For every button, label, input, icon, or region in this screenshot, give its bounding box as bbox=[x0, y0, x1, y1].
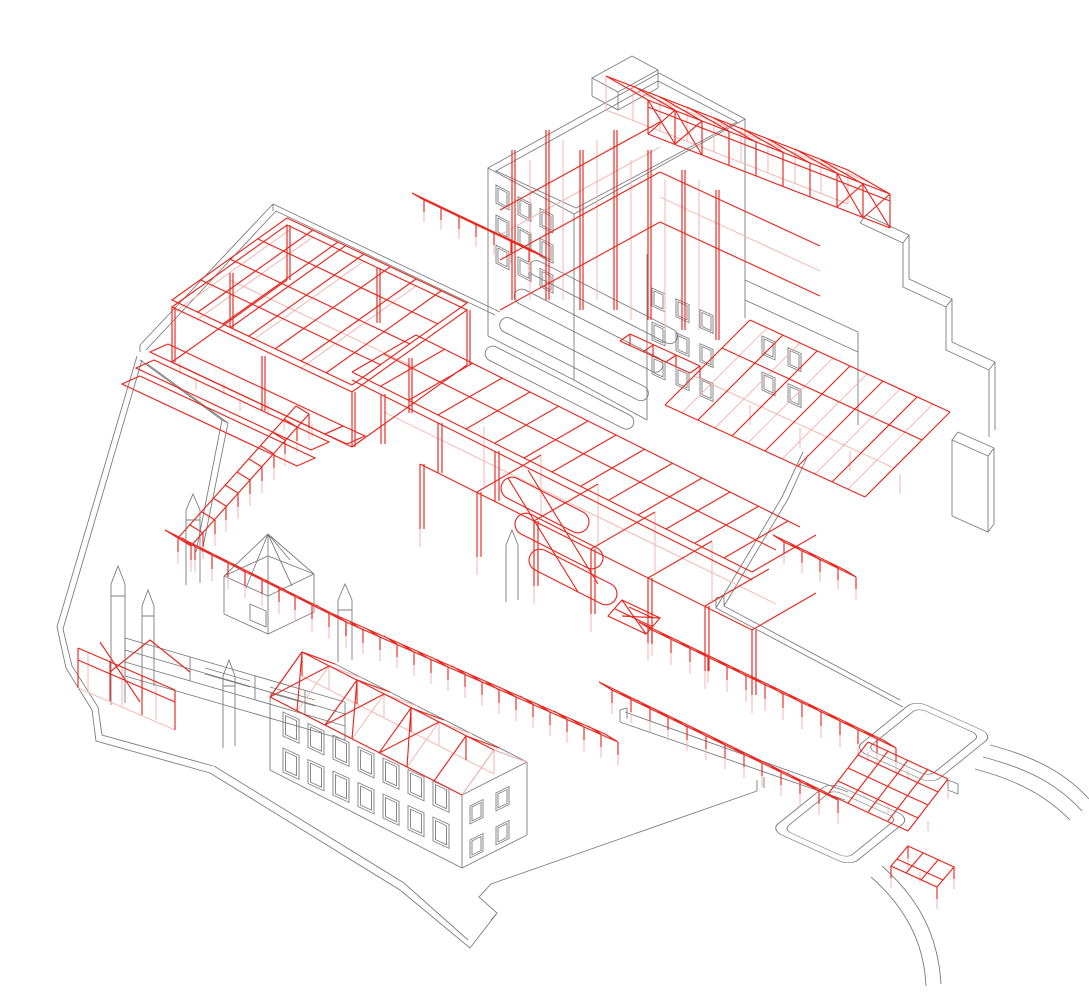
towers bbox=[111, 494, 518, 748]
entrance-canopy bbox=[891, 846, 954, 899]
terraces bbox=[122, 344, 365, 466]
pavilion-lower bbox=[770, 782, 910, 866]
courtyard-walls bbox=[620, 452, 903, 800]
pergola-e bbox=[639, 622, 896, 762]
roof-truss-canopy-hidden bbox=[606, 76, 869, 204]
stepped-parapets bbox=[860, 215, 995, 532]
entrance-canopy-hidden bbox=[891, 858, 954, 909]
context-layer bbox=[57, 56, 1089, 986]
old-building-windows-front bbox=[283, 712, 449, 848]
north-building bbox=[483, 56, 858, 432]
curved-paths bbox=[871, 745, 1089, 986]
pergola-h bbox=[412, 193, 546, 270]
upper-frame bbox=[172, 218, 470, 447]
floor-plate bbox=[140, 204, 500, 352]
trellis-grid bbox=[828, 742, 948, 831]
footbridge bbox=[773, 535, 856, 589]
north-building-windows-wing bbox=[762, 336, 801, 408]
central-frame bbox=[352, 335, 816, 695]
north-building-windows-left bbox=[496, 185, 553, 293]
site-platform bbox=[57, 356, 764, 948]
structure-layer bbox=[78, 76, 954, 899]
tower-frame bbox=[78, 640, 190, 730]
tower-frame-hidden bbox=[78, 652, 175, 730]
pergola-f bbox=[599, 682, 838, 813]
sloped-roof-frame-hidden bbox=[682, 328, 933, 494]
drawing-canvas bbox=[0, 0, 1089, 1000]
sloped-roof-frame bbox=[665, 320, 950, 497]
pergola-a bbox=[178, 406, 309, 560]
roof-truss-canopy bbox=[606, 76, 890, 228]
axonometric-drawing bbox=[0, 0, 1089, 1000]
